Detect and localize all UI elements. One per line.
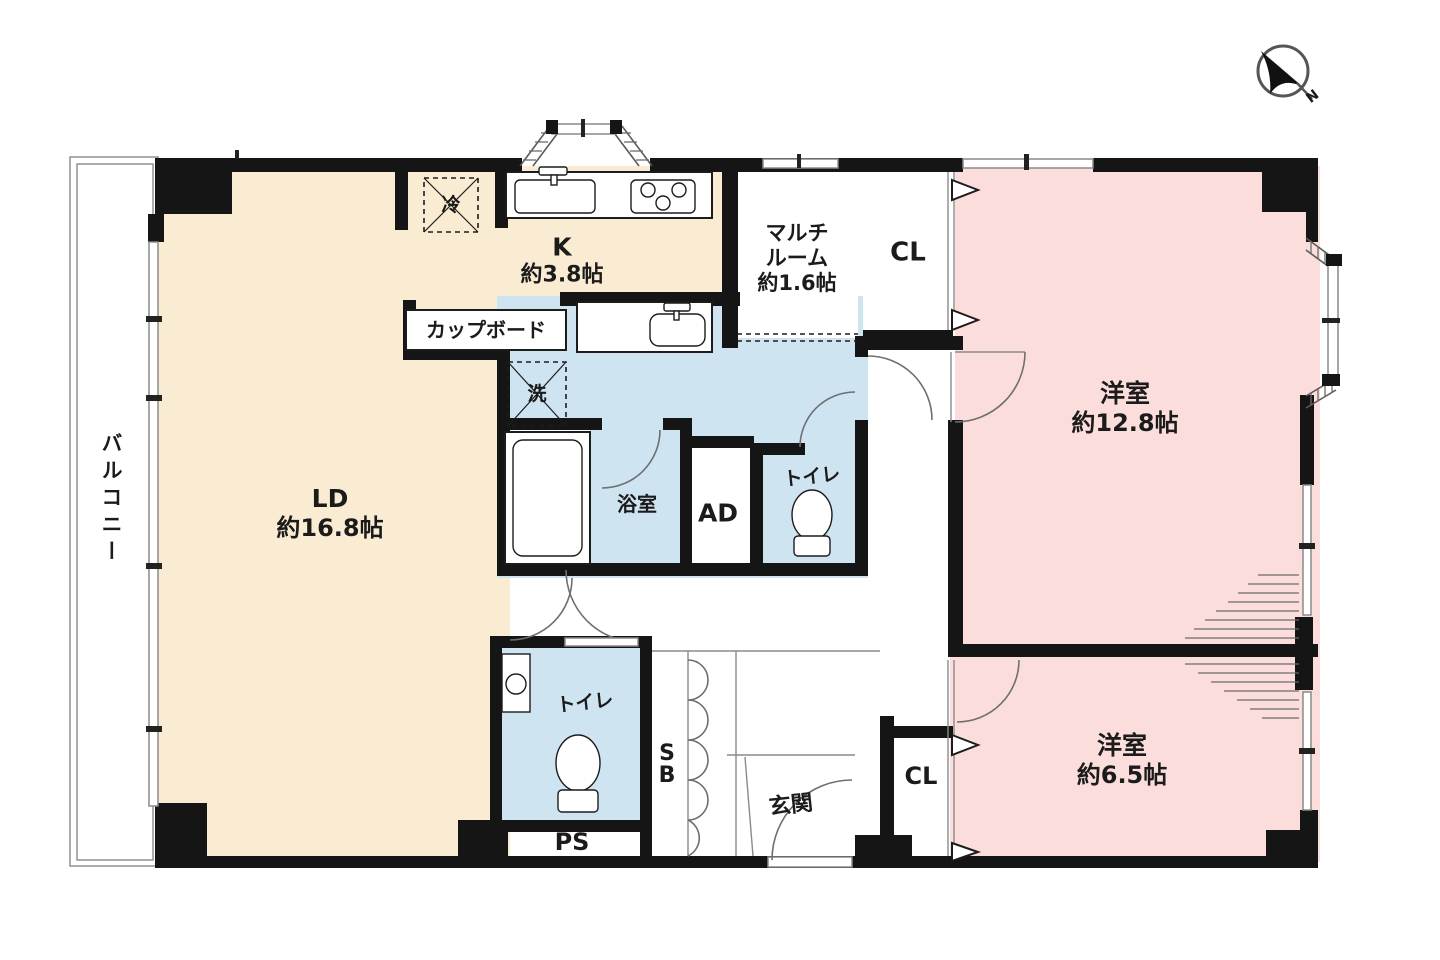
west-room-1-name: 洋室: [1071, 379, 1178, 409]
multi-room-line2: ルーム: [757, 246, 836, 271]
balcony-label: バルコニー: [96, 432, 126, 567]
ps-label: PS: [555, 828, 590, 856]
multi-room-line1: マルチ: [757, 221, 836, 246]
compass-icon: [1258, 46, 1312, 99]
ld-window: [149, 242, 158, 806]
kitchen-bay-window: [520, 119, 652, 166]
vanity-sink: [577, 302, 712, 352]
bath-label: 浴室: [617, 493, 657, 517]
corridor-door-arc: [566, 570, 638, 642]
kitchen-name: K: [521, 232, 604, 262]
genkan-label: 玄関: [768, 791, 814, 821]
west-room-1-label: 洋室 約12.8帖: [1071, 379, 1178, 437]
west-room-1-side-window: [1303, 485, 1311, 615]
closet-top-label: CL: [890, 238, 926, 269]
toilet-upper-icon: [792, 490, 832, 556]
ld-door-arc: [510, 578, 572, 640]
multi-room-size: 約1.6帖: [757, 270, 836, 295]
shoe-box-label: S B: [659, 743, 676, 787]
kitchen-label: K 約3.8帖: [521, 232, 604, 287]
shoe-box-doors: [688, 651, 736, 856]
ad-label: AD: [698, 498, 738, 528]
multi-room-label: マルチ ルーム 約1.6帖: [757, 221, 836, 295]
floor-hallway: [868, 348, 950, 657]
closet-bottom-label: CL: [905, 762, 938, 790]
ld-name: LD: [276, 484, 383, 514]
entrance-door-arc: [772, 780, 852, 860]
ld-label: LD 約16.8帖: [276, 484, 383, 542]
laundry-label: 洗: [527, 383, 546, 405]
floor-plan-drawing: [0, 0, 1440, 960]
west-room-1-size: 約12.8帖: [1071, 409, 1178, 437]
cupboard-label: カップボード: [426, 319, 546, 343]
fridge-label: 冷: [441, 194, 460, 216]
kitchen-size: 約3.8帖: [521, 262, 604, 288]
bathtub-icon: [505, 432, 590, 564]
shoe-box-line2: B: [659, 765, 676, 787]
west-room-2-size: 約6.5帖: [1077, 761, 1168, 789]
floor-plan: バルコニー LD 約16.8帖 K 約3.8帖 カップボード 冷 洗 浴室 AD…: [0, 0, 1440, 960]
west-room-2-name: 洋室: [1077, 731, 1168, 761]
shoe-box-line1: S: [659, 743, 676, 765]
kitchen-counter: [506, 167, 712, 218]
west-room-2-label: 洋室 約6.5帖: [1077, 731, 1168, 789]
entrance-door-slot: [768, 857, 852, 867]
ld-size: 約16.8帖: [276, 514, 383, 542]
